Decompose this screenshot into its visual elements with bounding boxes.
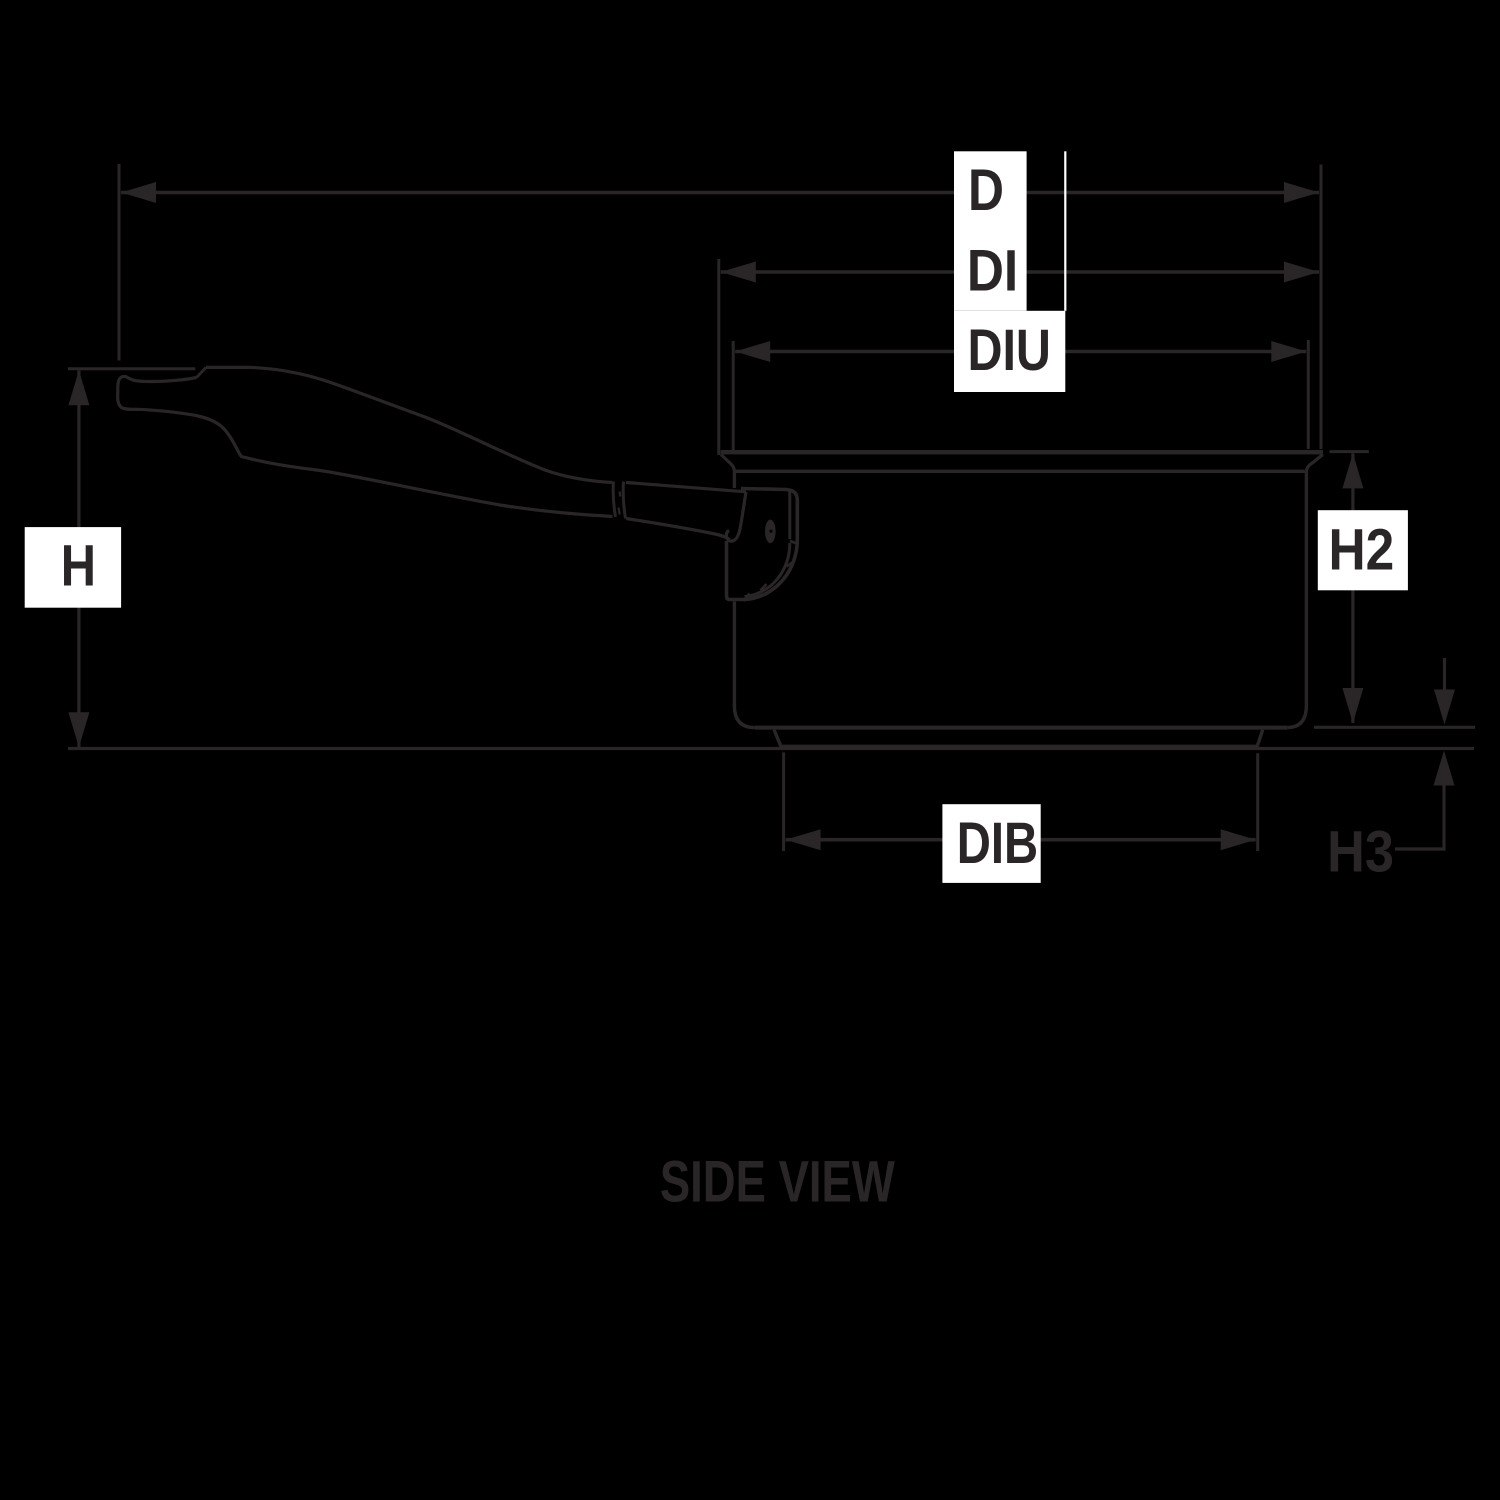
- svg-text:DIB: DIB: [957, 812, 1038, 877]
- svg-text:SIDE VIEW: SIDE VIEW: [660, 1150, 896, 1215]
- svg-text:DI: DI: [967, 238, 1018, 304]
- svg-text:D: D: [968, 159, 1004, 223]
- svg-text:H2: H2: [1329, 516, 1395, 582]
- svg-text:H3: H3: [1327, 819, 1394, 884]
- svg-text:DIU: DIU: [967, 319, 1050, 383]
- svg-text:H: H: [61, 534, 96, 599]
